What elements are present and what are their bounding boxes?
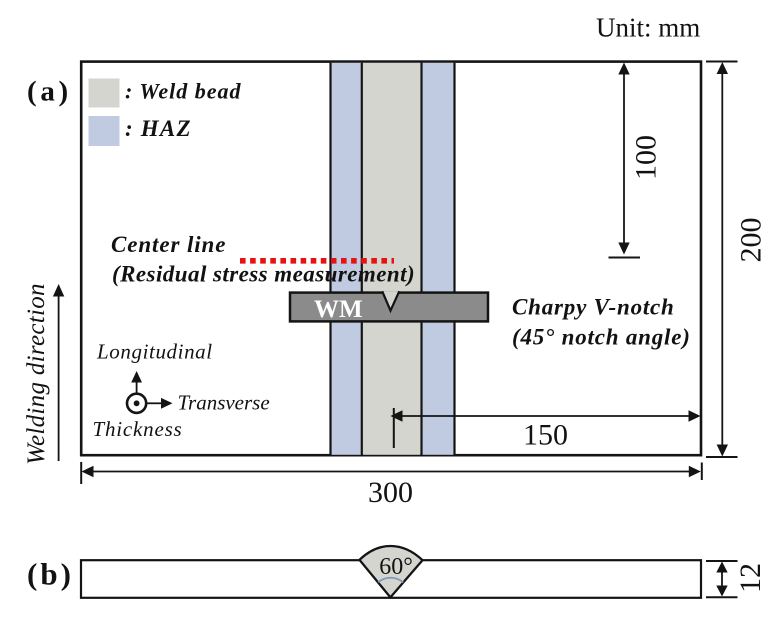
svg-text:60°: 60° — [379, 554, 413, 580]
svg-text:(45° notch angle): (45° notch angle) — [512, 325, 691, 350]
svg-text:12: 12 — [734, 563, 767, 593]
svg-text:Thickness: Thickness — [93, 417, 183, 441]
svg-text:200: 200 — [734, 218, 767, 263]
svg-text:Longitudinal: Longitudinal — [96, 340, 213, 364]
svg-text:300: 300 — [368, 476, 413, 509]
svg-text:Transverse: Transverse — [178, 391, 270, 415]
svg-text:WM: WM — [314, 296, 363, 323]
svg-text:: HAZ: : HAZ — [125, 116, 192, 141]
svg-text:Charpy V-notch: Charpy V-notch — [512, 295, 675, 320]
svg-text:150: 150 — [523, 419, 568, 452]
svg-text:(Residual stress measurement): (Residual stress measurement) — [112, 262, 415, 287]
svg-text:: Weld bead: : Weld bead — [125, 78, 242, 103]
svg-text:(a): (a) — [27, 76, 72, 108]
svg-text:Center line: Center line — [111, 232, 226, 257]
svg-text:100: 100 — [629, 135, 662, 180]
svg-text:Welding direction: Welding direction — [23, 283, 50, 465]
svg-text:(b): (b) — [27, 557, 74, 592]
svg-text:Unit: mm: Unit: mm — [596, 13, 700, 43]
